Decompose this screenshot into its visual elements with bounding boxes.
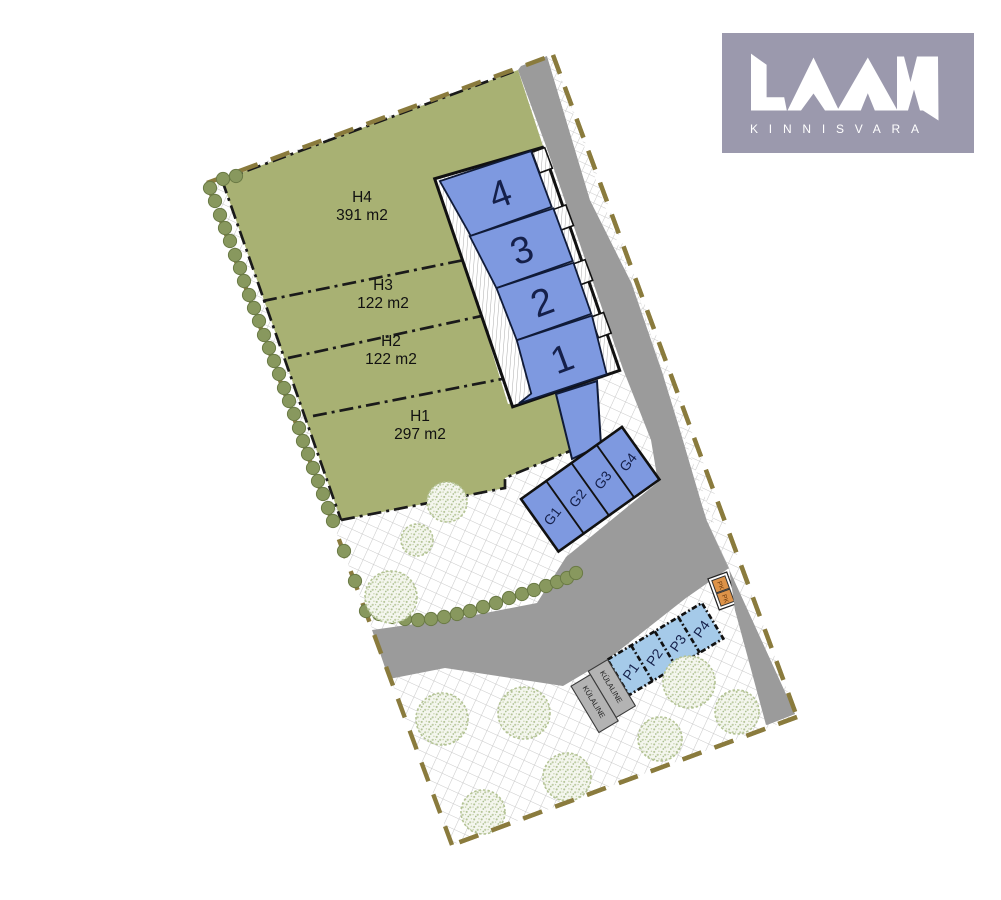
svg-text:122 m2: 122 m2 xyxy=(357,295,409,312)
svg-text:297 m2: 297 m2 xyxy=(394,426,446,443)
svg-text:H4: H4 xyxy=(352,189,372,206)
svg-text:391 m2: 391 m2 xyxy=(336,207,388,224)
svg-text:H2: H2 xyxy=(381,333,401,350)
svg-text:H3: H3 xyxy=(373,277,393,294)
svg-text:122 m2: 122 m2 xyxy=(365,351,417,368)
svg-text:KINNISVARA: KINNISVARA xyxy=(750,122,930,136)
svg-text:H1: H1 xyxy=(410,408,430,425)
